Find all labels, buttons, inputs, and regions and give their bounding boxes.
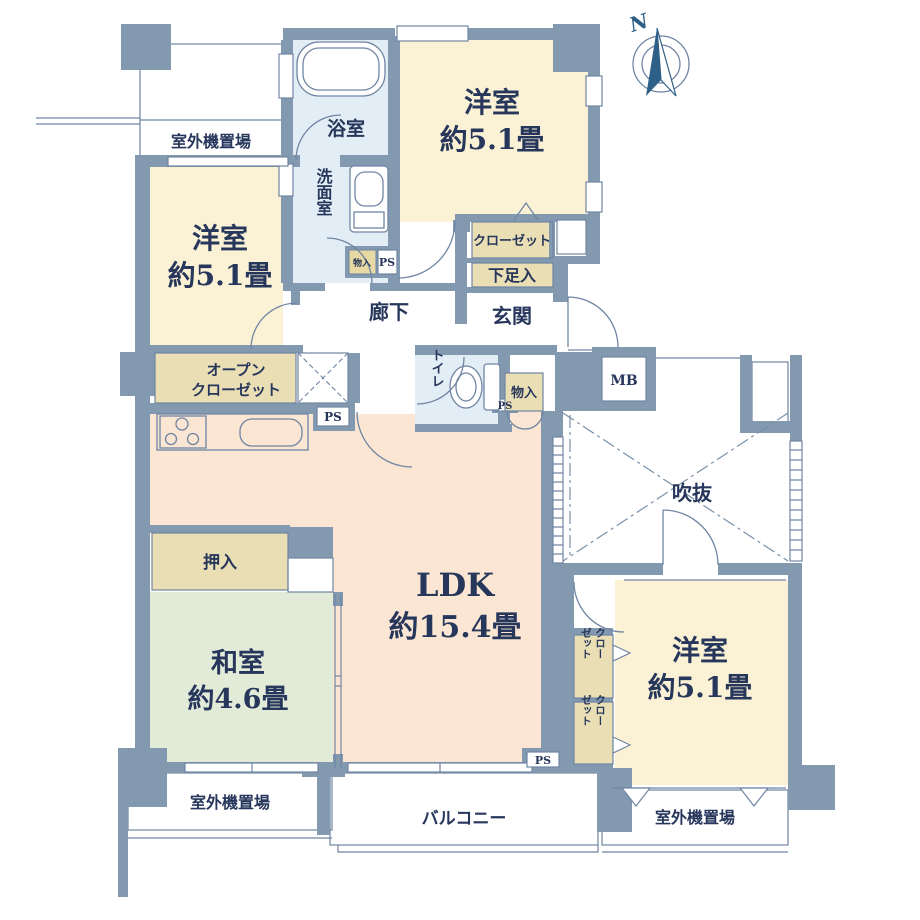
hatch-wall-right (790, 441, 802, 561)
label-balcony: バルコニー (422, 809, 507, 829)
label-closet-br1-col2: ゼット (580, 626, 592, 658)
label-ps-bottom: PS (535, 754, 551, 767)
label-washroom: 洗面室 (314, 167, 333, 216)
label-outdoor-bottom-left: 室外機置場 (190, 793, 270, 812)
label-closet-top: クローゼット (473, 233, 551, 249)
label-ps-washroom: PS (379, 256, 395, 269)
label-entrance: 玄関 (492, 304, 532, 328)
label-ps-toilet: PS (498, 401, 513, 412)
toilet-icon (450, 364, 500, 410)
bathtub-icon (297, 42, 385, 96)
label-closet-br1-col1: クロー (594, 627, 606, 659)
label-monoire-small: 物入 (353, 257, 371, 269)
label-oshiire: 押入 (203, 552, 237, 573)
label-bathroom: 浴室 (327, 117, 365, 140)
label-toilet: トイレ (429, 349, 445, 388)
label-closet-br2-col1: クロー (594, 694, 606, 726)
floor-plan-svg: N 洋室 約5.1畳 洋室 約5.1畳 洋室 約5.1畳 和室 約4.6畳 LD… (0, 0, 920, 920)
label-outdoor-bottom-right: 室外機置場 (655, 808, 735, 827)
compass-icon: N (625, 8, 689, 96)
label-ldk-name: LDK (416, 566, 495, 604)
shaft-box (298, 353, 348, 403)
label-void: 吹抜 (672, 481, 713, 505)
label-monoire2: 物入 (511, 385, 537, 401)
label-bedroom-top-size: 約5.1畳 (440, 123, 545, 156)
label-ps-kitchen: PS (324, 410, 342, 424)
label-outdoor-top-left: 室外機置場 (171, 132, 251, 151)
label-closet-br2-col2: ゼット (580, 693, 592, 725)
label-bedroom-left-size: 約5.1畳 (168, 259, 273, 292)
room-bedroom-left (150, 165, 283, 347)
label-open-closet-1: オープン (206, 361, 265, 379)
label-japanese-room-size: 約4.6畳 (188, 683, 289, 715)
label-open-closet-2: クローゼット (191, 381, 281, 399)
label-bedroom-right-size: 約5.1畳 (648, 671, 753, 704)
label-ldk-size: 約15.4畳 (388, 610, 521, 645)
compass-north-label: N (625, 8, 651, 37)
label-mb: MB (610, 373, 637, 389)
label-hallway: 廊下 (369, 300, 409, 324)
label-bedroom-top-name: 洋室 (464, 86, 520, 119)
label-bedroom-right-name: 洋室 (672, 634, 728, 667)
label-shoe-cabinet: 下足入 (488, 266, 536, 285)
washbasin-icon (350, 166, 388, 232)
label-japanese-room-name: 和室 (211, 647, 265, 679)
label-bedroom-left-name: 洋室 (192, 222, 248, 255)
floor-plan: N 洋室 約5.1畳 洋室 約5.1畳 洋室 約5.1畳 和室 約4.6畳 LD… (0, 0, 920, 920)
hatch-wall-left (553, 437, 563, 563)
